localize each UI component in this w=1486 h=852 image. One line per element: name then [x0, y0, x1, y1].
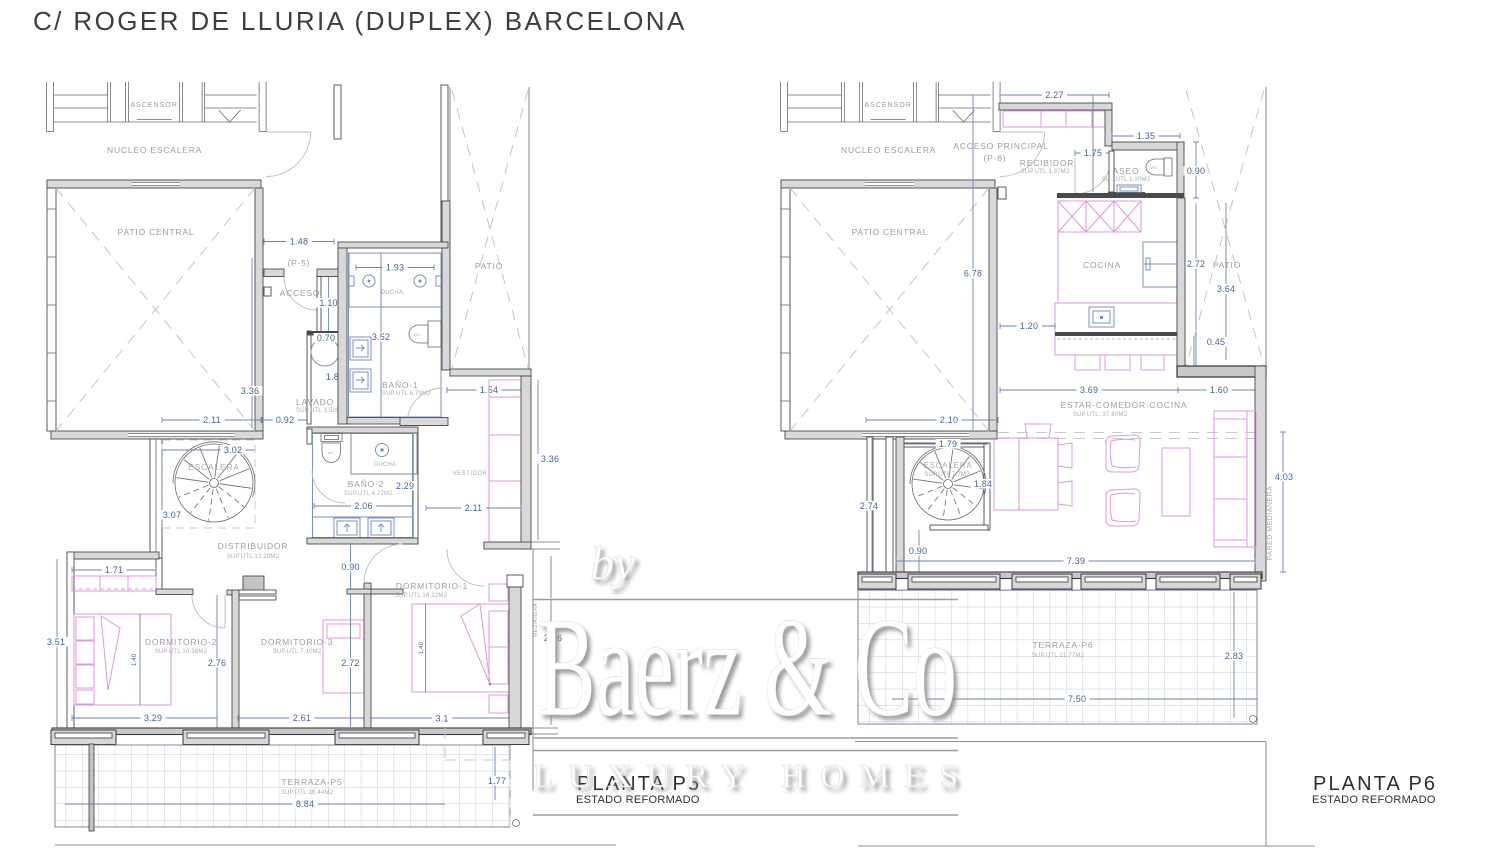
svg-text:ASEO: ASEO [1113, 166, 1140, 176]
svg-text:PATIO CENTRAL: PATIO CENTRAL [852, 227, 929, 237]
svg-text:SUP.UTL 21.77M2: SUP.UTL 21.77M2 [1032, 653, 1085, 659]
svg-text:TERRAZA-P5: TERRAZA-P5 [282, 777, 343, 787]
svg-text:3.36: 3.36 [541, 454, 559, 464]
svg-text:SUP.UTL 7.7M2: SUP.UTL 7.7M2 [924, 472, 970, 478]
svg-text:ESTADO REFORMADO: ESTADO REFORMADO [1312, 794, 1436, 806]
svg-text:1.84: 1.84 [974, 479, 992, 489]
svg-text:(P-5): (P-5) [288, 258, 311, 268]
svg-text:PATIO: PATIO [1213, 260, 1241, 270]
svg-text:3.1: 3.1 [435, 714, 448, 724]
svg-text:3.69: 3.69 [1080, 385, 1098, 395]
svg-text:PLANTA P6: PLANTA P6 [1313, 773, 1437, 795]
svg-text:WC: WC [1150, 165, 1157, 170]
svg-text:PARED MEDIANERA: PARED MEDIANERA [1267, 486, 1274, 561]
svg-text:0.90: 0.90 [1187, 166, 1205, 176]
svg-text:LAVADO: LAVADO [296, 397, 334, 407]
svg-text:1.93: 1.93 [386, 263, 404, 273]
svg-text:2.11: 2.11 [465, 503, 483, 513]
svg-text:SUP.UTL 16.44M2: SUP.UTL 16.44M2 [281, 790, 334, 796]
svg-text:2.61: 2.61 [293, 713, 311, 723]
svg-text:3.51: 3.51 [47, 637, 65, 647]
svg-text:0.90: 0.90 [341, 562, 359, 572]
svg-text:SUP.UTL 18.22M2: SUP.UTL 18.22M2 [395, 593, 448, 599]
svg-text:3.29: 3.29 [144, 713, 162, 723]
svg-text:1.20: 1.20 [1020, 321, 1038, 331]
svg-text:7.39: 7.39 [1067, 556, 1085, 566]
svg-text:ESCALERA: ESCALERA [923, 461, 972, 470]
svg-text:2.29: 2.29 [396, 481, 414, 491]
svg-text:BAÑO-1: BAÑO-1 [382, 380, 418, 390]
svg-text:TERRAZA-P6: TERRAZA-P6 [1033, 640, 1094, 650]
svg-text:4.03: 4.03 [1275, 472, 1293, 482]
svg-text:3.02: 3.02 [224, 445, 242, 455]
svg-text:PATIO: PATIO [475, 261, 503, 271]
svg-text:0.90: 0.90 [909, 546, 927, 556]
svg-text:7.50: 7.50 [1068, 694, 1086, 704]
svg-text:2.74: 2.74 [860, 501, 878, 511]
svg-text:3.36: 3.36 [241, 386, 259, 396]
svg-text:1.71: 1.71 [105, 565, 123, 575]
svg-text:0.45: 0.45 [1207, 337, 1225, 347]
svg-text:3.07: 3.07 [163, 510, 181, 520]
svg-text:ACCESO PRINCIPAL: ACCESO PRINCIPAL [953, 141, 1048, 151]
svg-text:NUCLEO ESCALERA: NUCLEO ESCALERA [841, 145, 936, 155]
svg-text:DORMITORIO-1: DORMITORIO-1 [396, 581, 468, 591]
svg-text:2.11: 2.11 [203, 415, 221, 425]
svg-text:VESTIDOR: VESTIDOR [453, 471, 488, 477]
svg-text:DORMITORIO-2: DORMITORIO-2 [145, 637, 217, 647]
svg-text:PATIO CENTRAL: PATIO CENTRAL [118, 227, 195, 237]
svg-text:2.83: 2.83 [1225, 651, 1243, 661]
svg-text:DISTRIBUIDOR: DISTRIBUIDOR [218, 541, 289, 551]
svg-text:1.77: 1.77 [488, 776, 506, 786]
svg-text:(P-6): (P-6) [984, 153, 1007, 163]
svg-text:1,40: 1,40 [419, 641, 425, 654]
svg-text:WC: WC [327, 450, 334, 455]
svg-text:RECIBIDOR: RECIBIDOR [1020, 158, 1074, 168]
svg-text:BAÑO-2: BAÑO-2 [348, 479, 384, 489]
svg-text:2.76: 2.76 [208, 658, 226, 668]
svg-text:ACCESO: ACCESO [280, 288, 321, 298]
svg-text:2.10: 2.10 [940, 415, 958, 425]
svg-text:SUP.UTL 7.10M2: SUP.UTL 7.10M2 [273, 649, 322, 655]
svg-text:2.72: 2.72 [1187, 259, 1205, 269]
svg-text:DUCHA: DUCHA [374, 462, 396, 468]
svg-text:SUP.UTL. 37.60M2: SUP.UTL. 37.60M2 [1073, 412, 1128, 418]
svg-text:C/ ROGER DE LLURIA (DUPLEX) B: C/ ROGER DE LLURIA (DUPLEX) BARCELONA [33, 6, 687, 36]
svg-text:0.70: 0.70 [317, 333, 335, 343]
svg-text:ASCENSOR: ASCENSOR [130, 100, 178, 109]
svg-text:2.27: 2.27 [1045, 90, 1063, 100]
svg-text:1.48: 1.48 [290, 237, 308, 247]
svg-text:ASCENSOR: ASCENSOR [864, 100, 912, 109]
svg-text:8.84: 8.84 [296, 799, 314, 809]
svg-text:3.64: 3.64 [1217, 284, 1235, 294]
svg-text:SUP.UTL 6.79M2: SUP.UTL 6.79M2 [382, 391, 431, 397]
svg-text:0.92: 0.92 [276, 415, 294, 425]
svg-text:by: by [590, 537, 636, 590]
svg-text:SUP.UTL 3.97M2: SUP.UTL 3.97M2 [1021, 169, 1070, 175]
svg-text:DUCHA: DUCHA [381, 290, 403, 296]
svg-text:Baerz & Co: Baerz & Co [537, 588, 957, 746]
svg-text:WC: WC [413, 332, 420, 337]
svg-text:1.79: 1.79 [939, 439, 957, 449]
svg-text:2.72: 2.72 [341, 658, 359, 668]
svg-text:ESTAR-COMEDOR-COCINA: ESTAR-COMEDOR-COCINA [1061, 400, 1188, 410]
svg-text:1.10: 1.10 [319, 298, 337, 308]
svg-text:NUCLEO ESCALERA: NUCLEO ESCALERA [107, 145, 202, 155]
svg-text:ESCALERA: ESCALERA [188, 462, 240, 472]
svg-text:SUP.UTL 4.72M2: SUP.UTL 4.72M2 [344, 491, 393, 497]
svg-text:2.06: 2.06 [354, 501, 372, 511]
svg-text:1,40: 1,40 [132, 653, 138, 666]
svg-text:SUP.UTL 12.28M2: SUP.UTL 12.28M2 [227, 554, 280, 560]
svg-text:3.52: 3.52 [372, 332, 390, 342]
svg-text:1.60: 1.60 [1210, 385, 1228, 395]
svg-text:COCINA: COCINA [1083, 260, 1121, 270]
svg-text:1.35: 1.35 [1137, 131, 1155, 141]
svg-text:SUP.UTL 10.38M2: SUP.UTL 10.38M2 [155, 649, 208, 655]
svg-text:6.78: 6.78 [964, 269, 982, 279]
svg-text:DORMITORIO-3: DORMITORIO-3 [261, 637, 333, 647]
